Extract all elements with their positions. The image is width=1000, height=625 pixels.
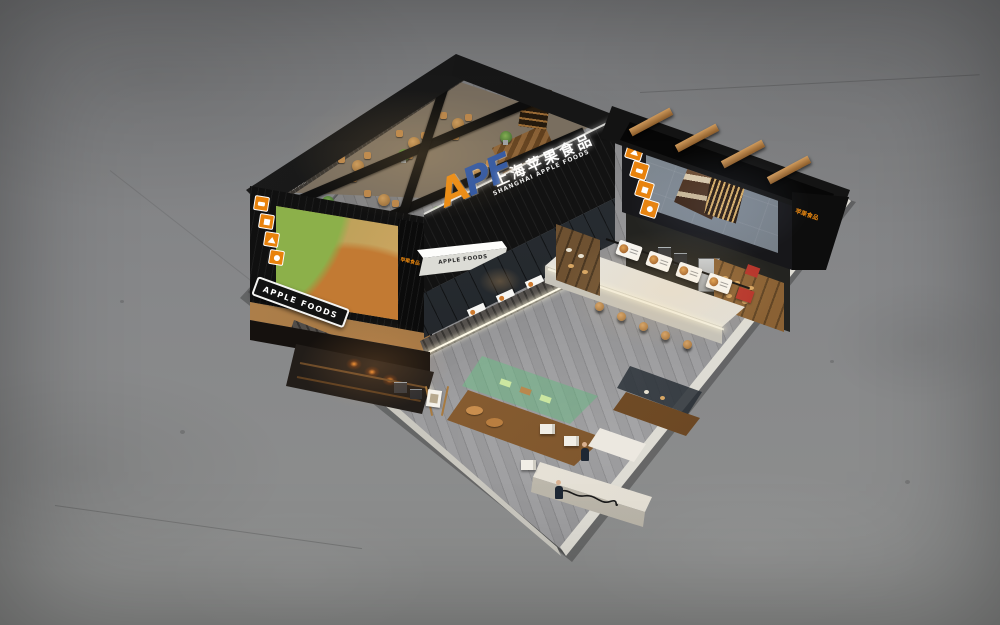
fish-icon	[263, 231, 280, 248]
easel-poster	[426, 389, 442, 408]
bar-stool	[595, 302, 604, 311]
meat-icon-glyph	[263, 218, 270, 225]
case-item	[660, 396, 665, 400]
cafe-chair	[364, 190, 371, 197]
bread-icon	[253, 195, 270, 212]
bread-basket	[486, 418, 503, 427]
shelf-product	[566, 248, 572, 252]
apple-icon-glyph	[273, 254, 280, 261]
cafe-chair	[364, 152, 371, 159]
staff-person-head	[582, 442, 587, 447]
cafe-table	[378, 194, 390, 206]
cafe-chair	[465, 114, 472, 121]
bar-stool	[639, 322, 648, 331]
apple-icon	[268, 249, 285, 266]
cafe-chair	[440, 112, 447, 119]
menu-text-line	[629, 251, 637, 255]
bread-basket	[466, 406, 483, 415]
apple-icon-glyph	[646, 205, 653, 212]
menu-text-line	[659, 262, 667, 266]
exhibition-booth-render: 上海苹果食品 SHANGHAI APPLE FOODS 苹果食品 APPLE F…	[0, 0, 1000, 625]
espresso-machine	[410, 389, 422, 399]
potted-plant	[500, 131, 512, 143]
shelf-product	[578, 254, 584, 258]
white-stool	[564, 436, 579, 446]
staff-person-head	[556, 480, 561, 485]
espresso-machine	[394, 382, 407, 393]
menu-food-image	[708, 276, 719, 287]
concrete-speck	[120, 300, 124, 303]
menu-food-image	[678, 265, 689, 276]
lit-display-glow	[346, 358, 362, 370]
concrete-speck	[830, 360, 834, 363]
easel-poster-image	[429, 393, 438, 403]
fish-icon-glyph	[267, 236, 276, 243]
menu-food-image	[618, 243, 629, 254]
menu-text-line	[689, 273, 697, 277]
meat-icon	[258, 213, 275, 230]
white-stool	[521, 460, 536, 470]
bar-stool	[683, 340, 692, 349]
bar-stool	[617, 312, 626, 321]
white-stool	[540, 424, 555, 434]
bar-stool	[661, 331, 670, 340]
staff-person	[555, 486, 563, 499]
cafe-chair	[396, 130, 403, 137]
concrete-speck	[180, 430, 185, 434]
bread-item	[726, 294, 732, 298]
concrete-speck	[905, 480, 910, 484]
cow-icon-glyph	[636, 168, 644, 174]
menu-food-image	[648, 254, 659, 265]
fish-icon-glyph	[641, 186, 648, 193]
menu-text-line	[719, 284, 727, 288]
case-item	[644, 390, 649, 394]
cafe-chair	[392, 200, 399, 207]
staff-person	[581, 448, 589, 461]
bread-icon-glyph	[258, 201, 266, 206]
shelf-product	[582, 270, 588, 274]
shelf-product	[568, 264, 574, 268]
